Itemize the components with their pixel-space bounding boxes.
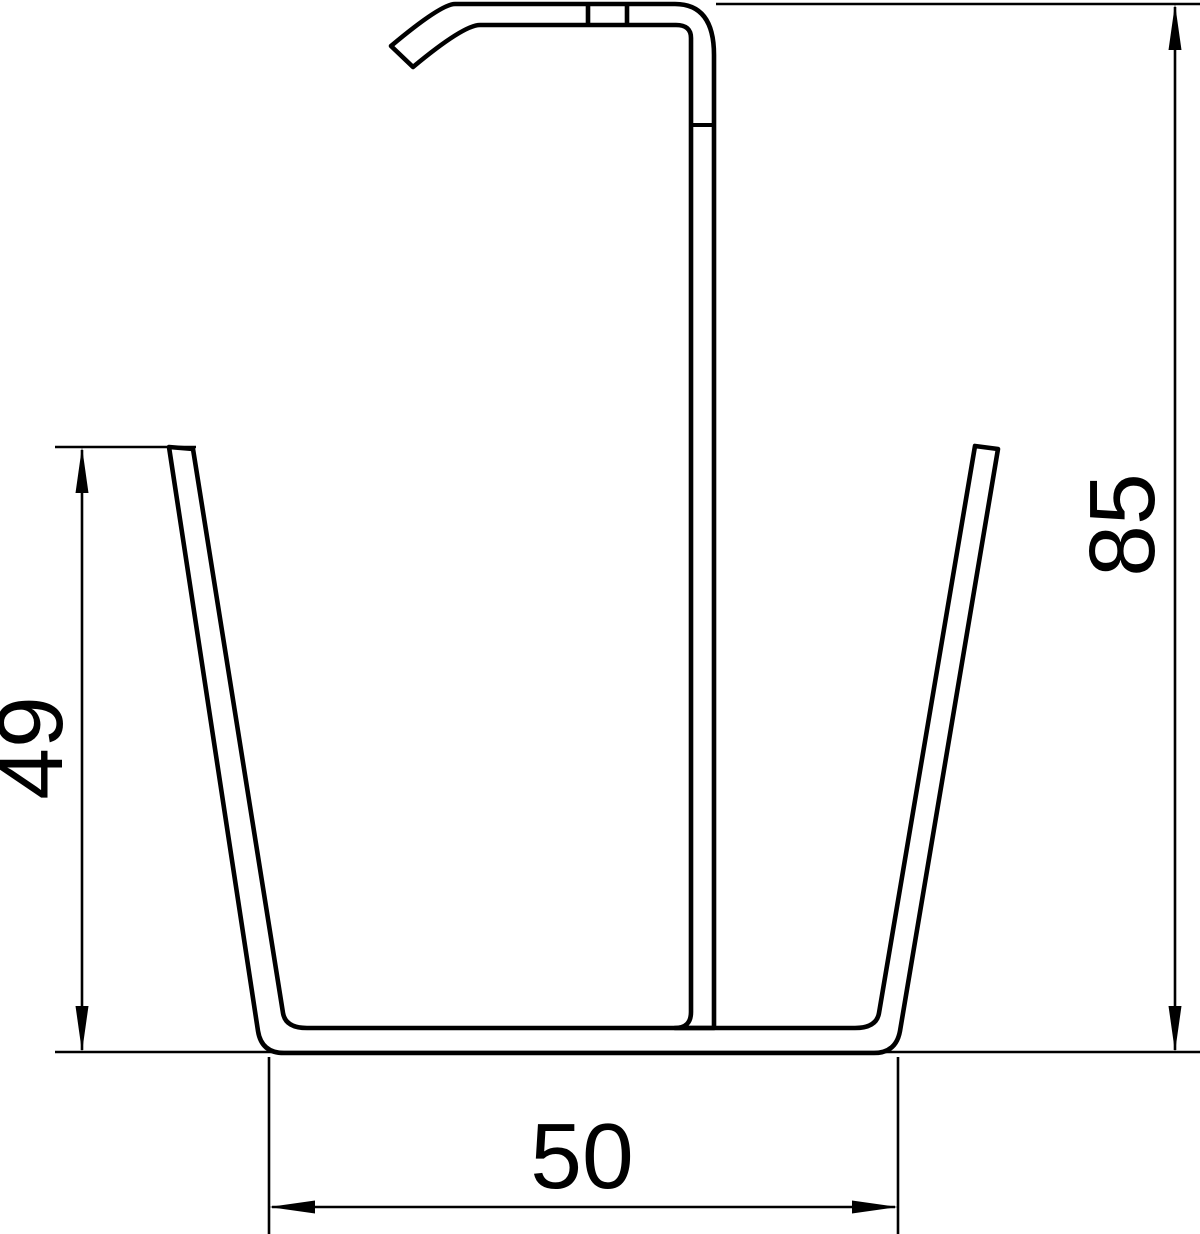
- dimension-arrowheads: [76, 4, 1182, 1214]
- dim-right-arrow-down: [1169, 1006, 1182, 1052]
- hook-stem-profile-outline: [391, 4, 714, 1028]
- dim-bottom-arrow-right: [852, 1201, 898, 1214]
- dimension-label-right-height: 85: [1072, 425, 1172, 625]
- technical-drawing-canvas: 49 85 50: [0, 0, 1200, 1234]
- dimension-label-bottom-width: 50: [482, 1106, 682, 1206]
- channel-profile-outline: [169, 446, 998, 1053]
- dim-bottom-arrow-left: [269, 1201, 315, 1214]
- dimension-extension-lines: [55, 4, 1200, 1234]
- dim-left-arrow-up: [76, 447, 89, 493]
- profile-outlines: [169, 4, 998, 1053]
- profile-drawing-svg: [0, 0, 1200, 1234]
- dim-right-arrow-up: [1169, 4, 1182, 50]
- dim-left-arrow-down: [76, 1006, 89, 1052]
- dimension-label-left-height: 49: [0, 648, 80, 848]
